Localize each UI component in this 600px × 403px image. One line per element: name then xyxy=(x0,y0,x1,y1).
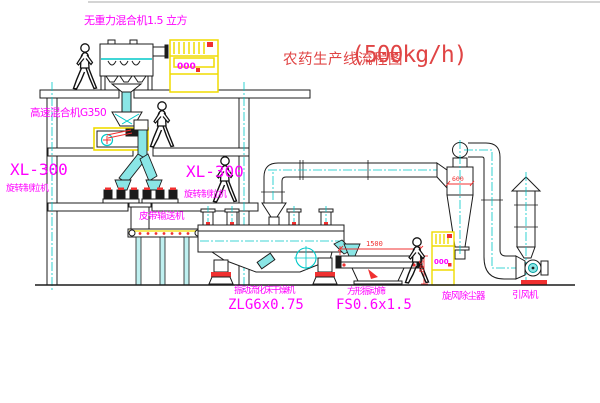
rotary-granulators xyxy=(103,188,178,204)
label-granulator-right-name: 旋转制粒机 xyxy=(184,191,227,200)
fan-suction-pipe xyxy=(464,143,518,279)
label-dryer-model: ZLG6x0.75 xyxy=(228,298,304,312)
label-fan: 引风机 xyxy=(512,291,538,301)
label-granulator-left-model: XL-300 xyxy=(10,162,68,178)
dimension-screen-height: 540 xyxy=(417,260,424,273)
label-gravity-mixer: 无重力混合机1.5 立方 xyxy=(84,15,187,26)
label-high-speed-mixer: 高速混合机G350 xyxy=(30,108,106,119)
label-belt-conveyor: 皮带输送机 xyxy=(139,212,184,222)
belt-conveyor xyxy=(128,229,202,285)
cabinet-top-display: 000 xyxy=(177,63,196,72)
label-granulator-left-name: 旋转制粒机 xyxy=(6,185,49,194)
cabinet-ground-display: 000 xyxy=(434,259,449,266)
gravity-free-mixer xyxy=(100,40,168,112)
label-screen-model: FS0.6x1.5 xyxy=(336,298,412,312)
exhaust-duct xyxy=(261,160,442,225)
cabinet-indicator-light xyxy=(207,42,213,47)
label-granulator-right-model: XL-300 xyxy=(186,164,244,180)
flow-diagram-canvas: 无重力混合机1.5 立方 农药生产线流程图 (500kg/h) 高速混合机G35… xyxy=(0,0,600,403)
label-dryer-name: 振动流化床干燥机 xyxy=(234,287,294,296)
label-screen-name: 方形振动筛 xyxy=(347,288,385,297)
cabinet-indicator-light xyxy=(447,234,452,238)
dimension-cyclone-body: 600 xyxy=(452,176,464,183)
induced-draft-fan xyxy=(516,256,548,285)
cabinet-button xyxy=(196,68,200,72)
diagram-title-capacity: (500kg/h) xyxy=(351,44,467,67)
label-cyclone: 旋风除尘器 xyxy=(442,292,485,302)
dimension-screen-length: 1500 xyxy=(366,241,383,248)
worker-top-floor xyxy=(74,44,97,89)
worker-second-floor xyxy=(151,102,174,147)
